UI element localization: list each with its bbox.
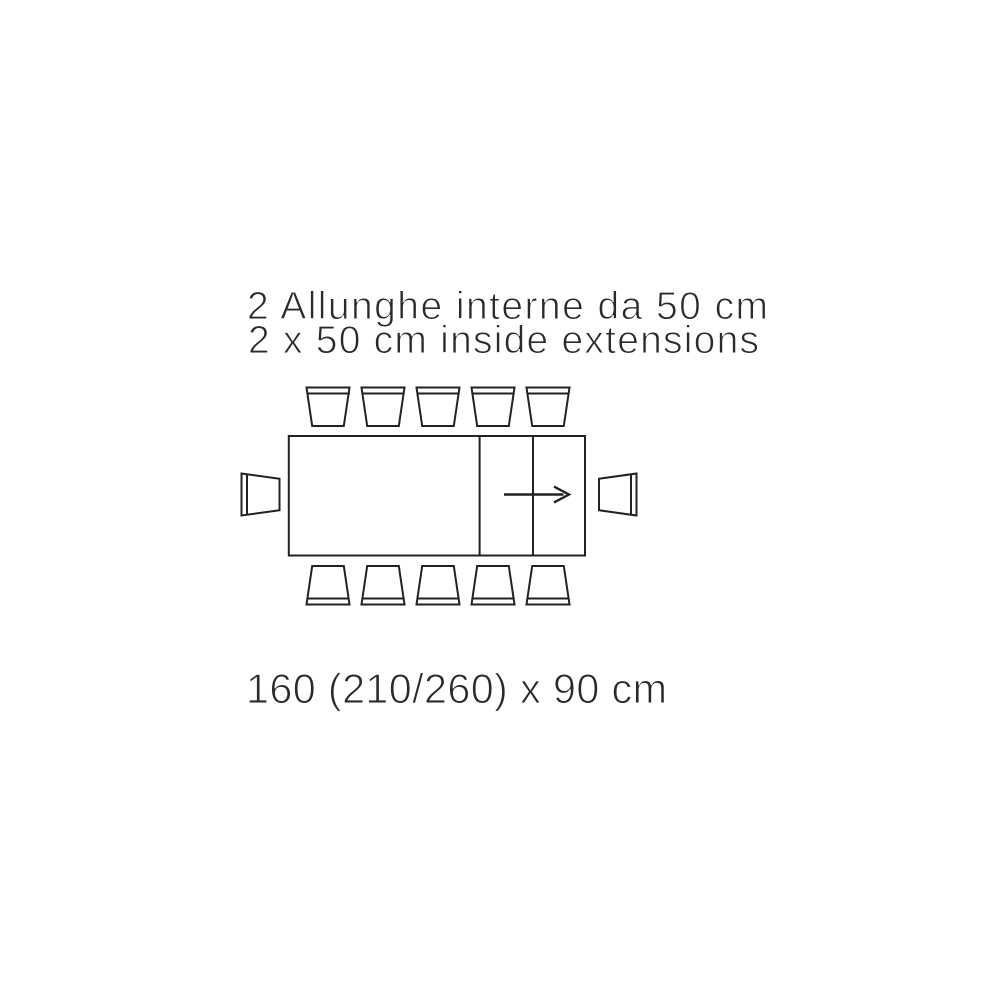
svg-text:2 x 50 cm inside extensions: 2 x 50 cm inside extensions bbox=[248, 319, 759, 362]
svg-text:160 (210/260) x 90 cm: 160 (210/260) x 90 cm bbox=[246, 666, 667, 712]
